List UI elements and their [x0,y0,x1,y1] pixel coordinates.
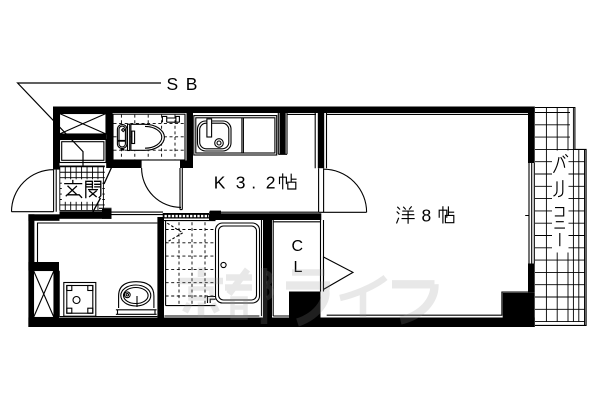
svg-text:3: 3 [236,172,246,192]
svg-text:B: B [186,74,198,94]
svg-text:K: K [214,172,226,192]
svg-text:S: S [167,74,179,94]
svg-text:.: . [251,172,256,192]
svg-text:2: 2 [266,172,276,192]
svg-text:C: C [292,238,304,255]
svg-text:8: 8 [422,205,432,225]
